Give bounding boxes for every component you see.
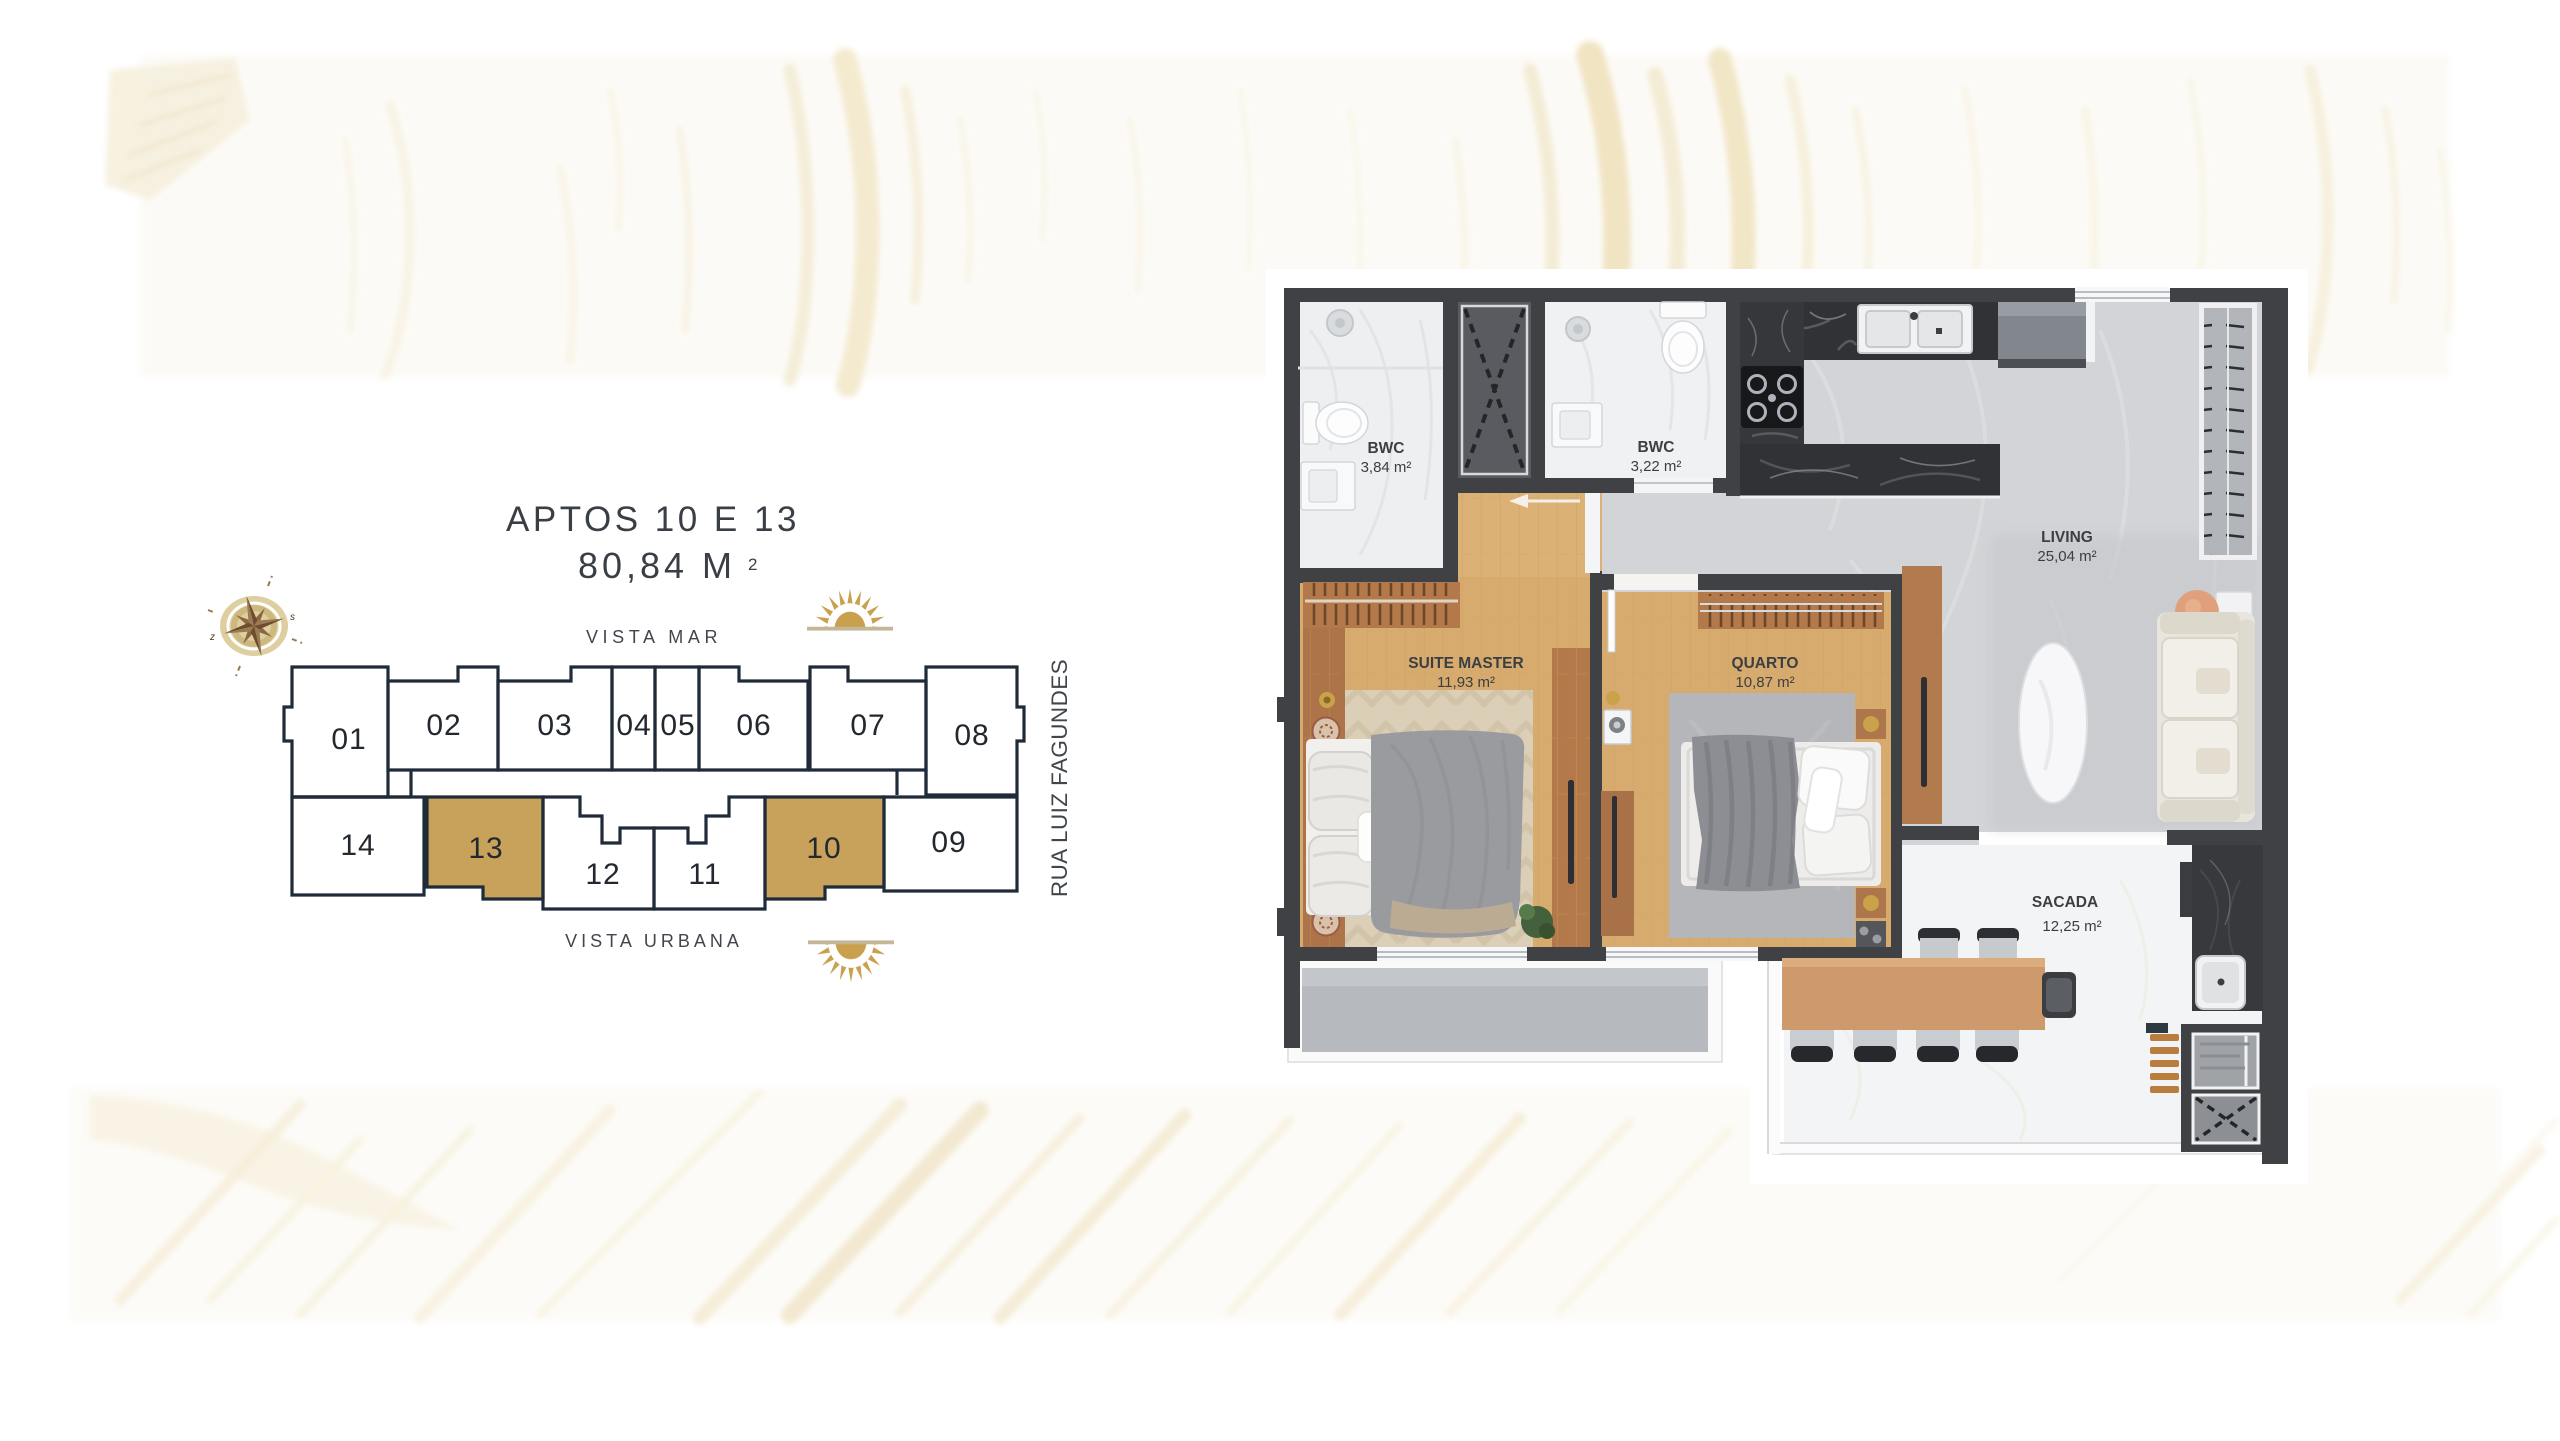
svg-text:01: 01 (331, 723, 366, 756)
svg-text:05: 05 (660, 709, 695, 742)
svg-text:08: 08 (954, 719, 989, 752)
svg-text:13: 13 (468, 832, 503, 865)
svg-text:02: 02 (426, 709, 461, 742)
svg-text:04: 04 (616, 709, 651, 742)
svg-text:80,84 M: 80,84 M (578, 545, 736, 586)
svg-text:25,04 m²: 25,04 m² (2037, 548, 2096, 565)
svg-text:09: 09 (931, 826, 966, 859)
svg-text:VISTA URBANA: VISTA URBANA (565, 931, 743, 951)
svg-text:s: s (290, 612, 295, 623)
svg-text:2: 2 (748, 555, 757, 574)
svg-text:11,93 m²: 11,93 m² (1437, 674, 1495, 691)
svg-text:07: 07 (850, 709, 885, 742)
svg-text:SACADA: SACADA (2032, 894, 2098, 911)
svg-text:BWC: BWC (1367, 440, 1404, 457)
svg-text:11: 11 (688, 858, 721, 891)
svg-text:SUITE MASTER: SUITE MASTER (1408, 655, 1523, 672)
svg-text:z: z (209, 632, 215, 643)
svg-text:LIVING: LIVING (2041, 529, 2093, 546)
svg-text:06: 06 (736, 709, 771, 742)
svg-text:VISTA MAR: VISTA MAR (586, 627, 722, 647)
svg-text:10,87 m²: 10,87 m² (1735, 674, 1794, 691)
svg-text:3,84 m²: 3,84 m² (1361, 459, 1412, 476)
svg-text:APTOS 10 E 13: APTOS 10 E 13 (506, 500, 800, 539)
svg-text:3,22 m²: 3,22 m² (1631, 458, 1682, 475)
svg-text:03: 03 (537, 709, 572, 742)
svg-text:RUA LUIZ FAGUNDES: RUA LUIZ FAGUNDES (1047, 659, 1072, 897)
svg-text:12: 12 (585, 858, 620, 891)
svg-text:14: 14 (340, 829, 375, 862)
svg-text:BWC: BWC (1637, 439, 1674, 456)
svg-text:QUARTO: QUARTO (1732, 655, 1799, 672)
svg-text:12,25 m²: 12,25 m² (2042, 918, 2101, 935)
svg-text:10: 10 (806, 832, 841, 865)
